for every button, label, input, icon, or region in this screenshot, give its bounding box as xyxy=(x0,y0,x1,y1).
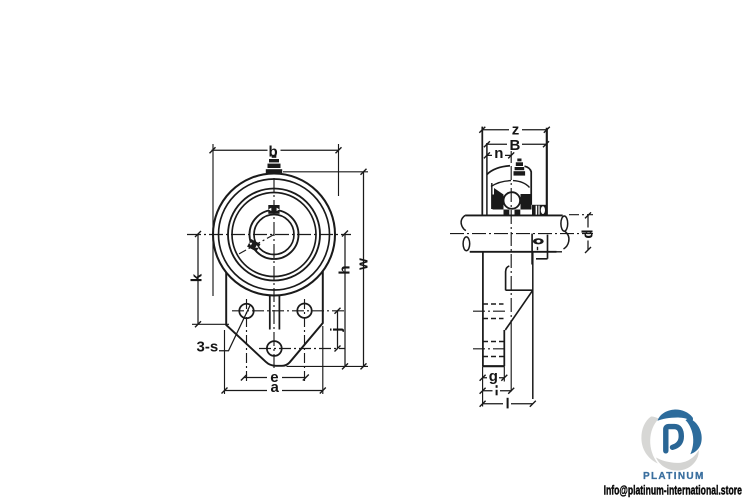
svg-text:n: n xyxy=(494,145,503,162)
svg-text:g: g xyxy=(489,368,498,385)
svg-text:b: b xyxy=(269,143,278,160)
svg-text:z: z xyxy=(512,121,520,138)
svg-text:PLATINUM: PLATINUM xyxy=(643,471,705,482)
svg-text:B: B xyxy=(510,137,521,154)
svg-text:j: j xyxy=(328,327,345,332)
svg-text:a: a xyxy=(271,379,280,396)
svg-text:d: d xyxy=(580,229,597,238)
svg-text:Info@platinum-international.st: Info@platinum-international.store xyxy=(604,484,742,498)
svg-text:w: w xyxy=(354,258,371,271)
svg-text:h: h xyxy=(336,265,353,274)
svg-text:k: k xyxy=(188,273,205,282)
svg-text:3-s: 3-s xyxy=(197,339,219,356)
